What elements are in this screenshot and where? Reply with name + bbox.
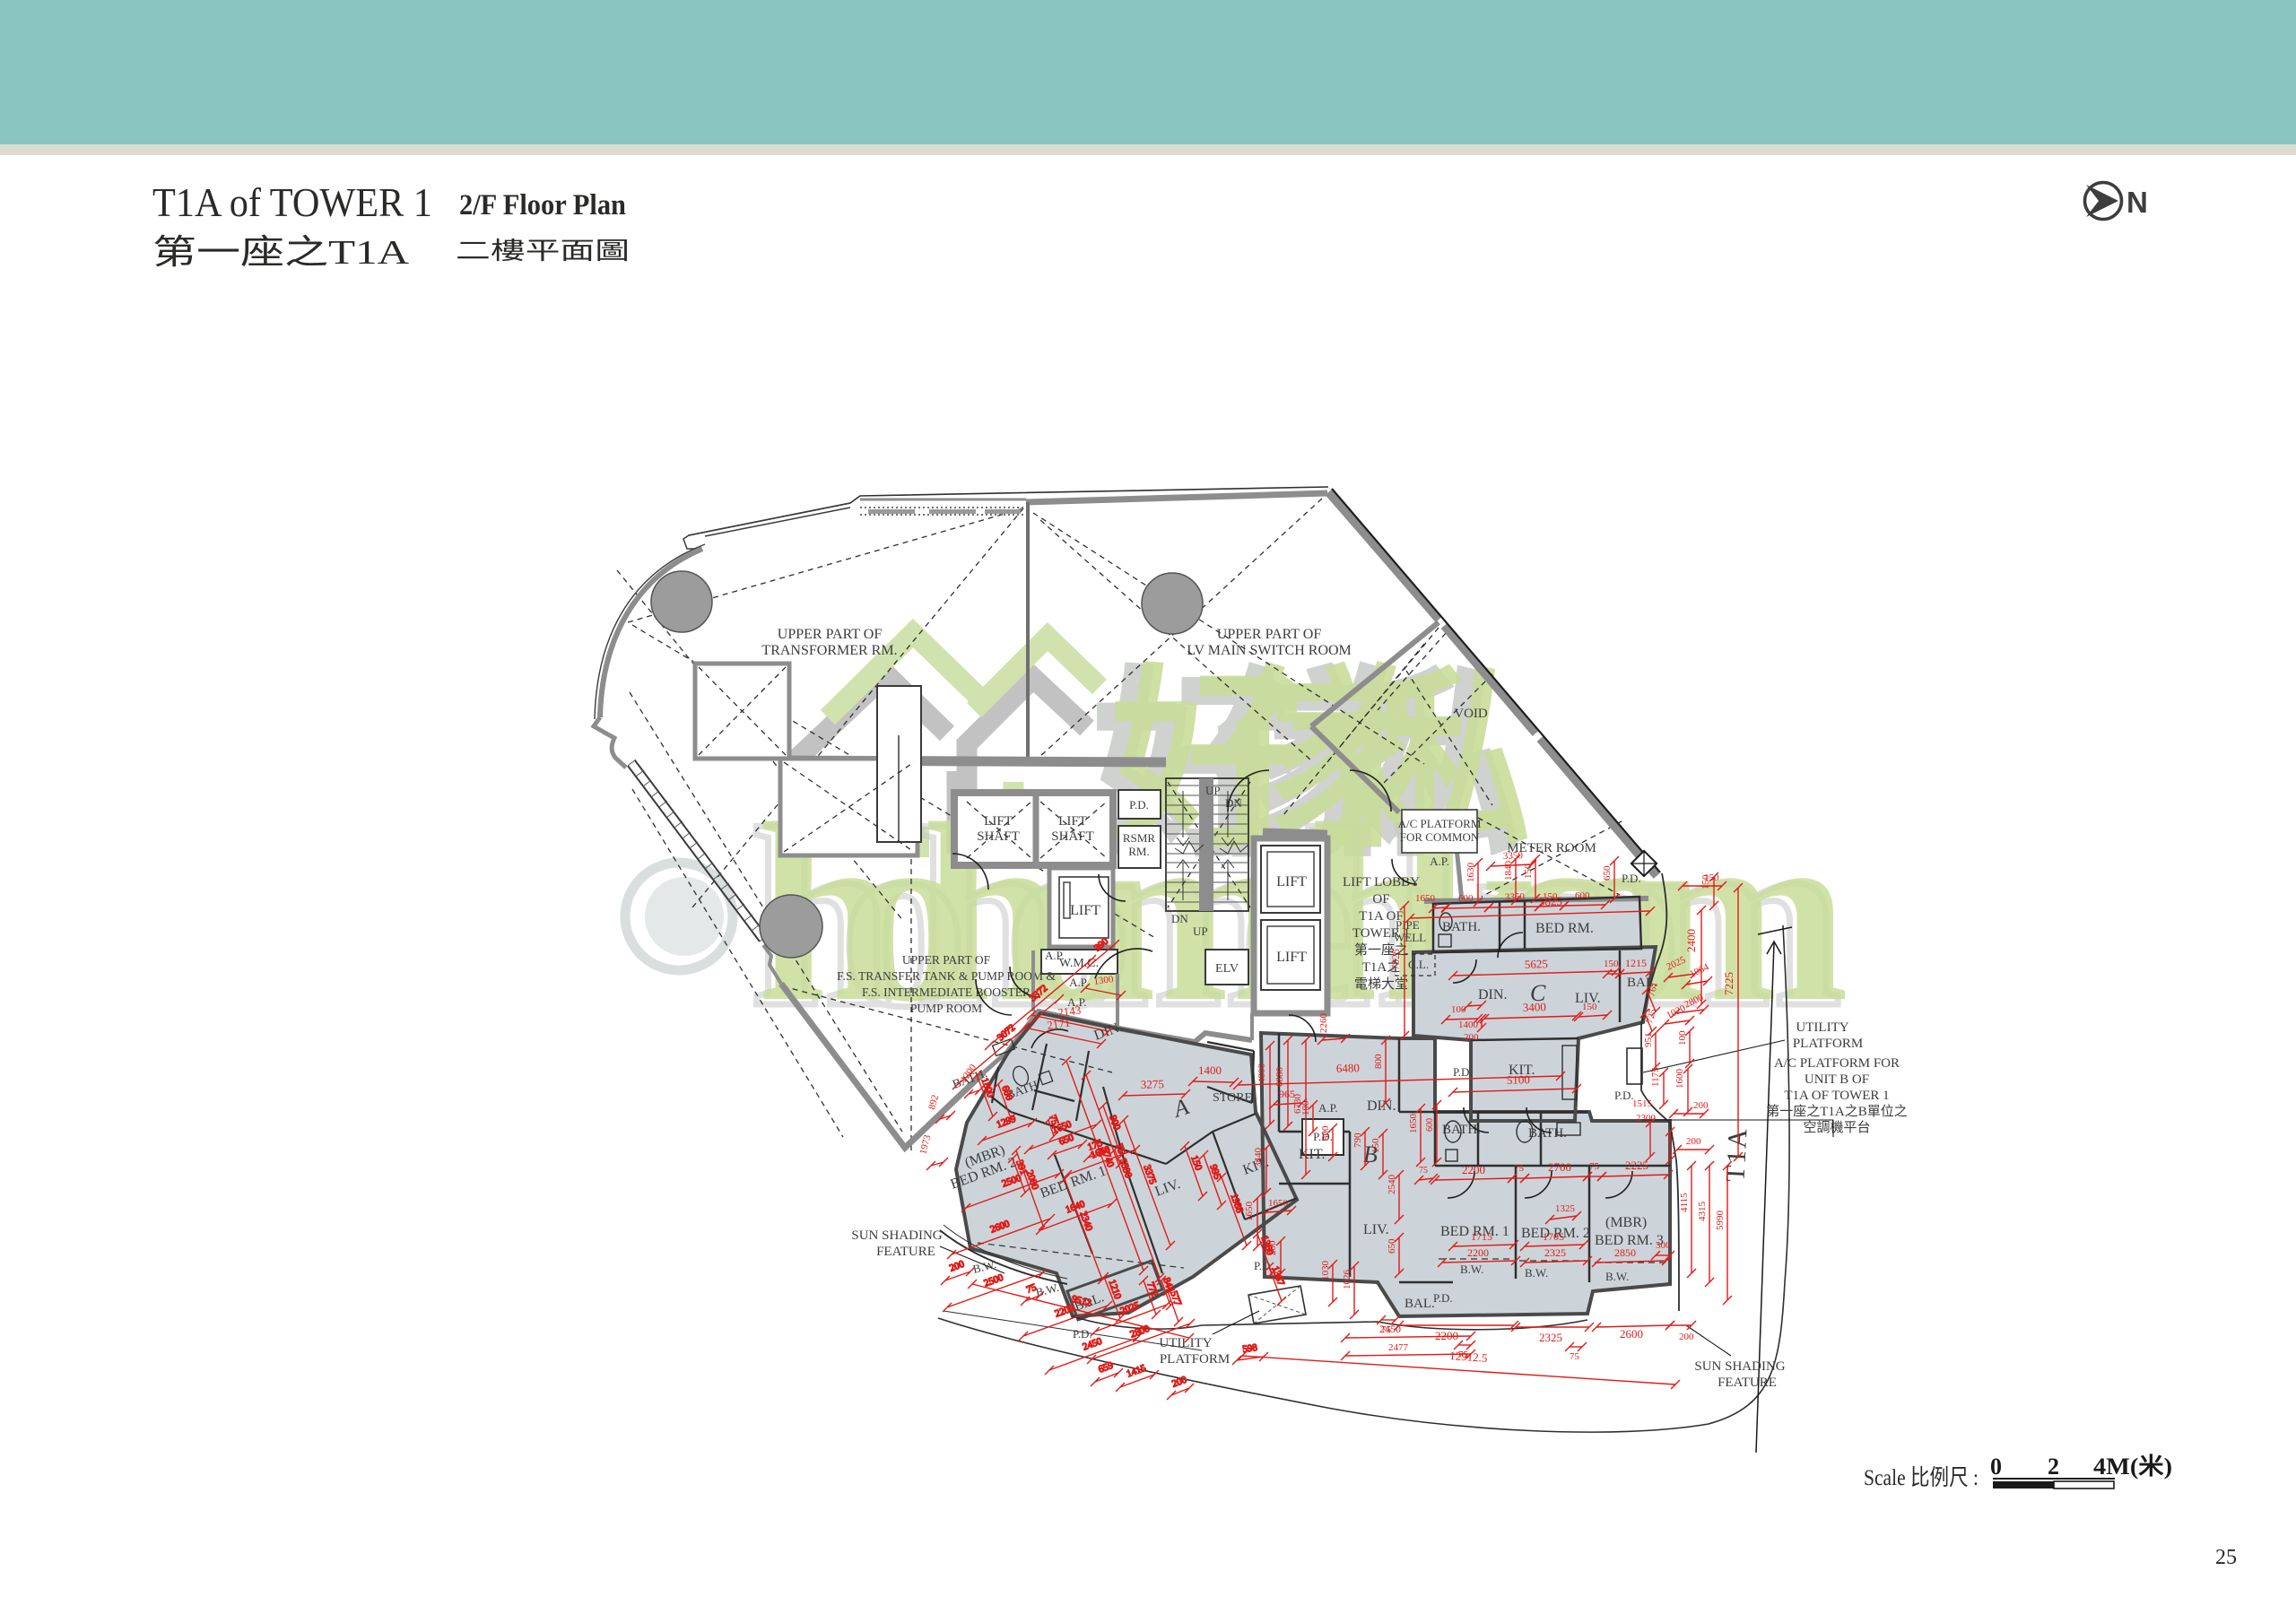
svg-text:2325: 2325 [1544,1246,1566,1259]
svg-text:3275: 3275 [1141,1077,1165,1091]
svg-text:2850: 2850 [1614,1246,1636,1259]
svg-text:951: 951 [1643,1033,1654,1048]
svg-text:2477: 2477 [1388,1342,1409,1353]
svg-text:FEATURE: FEATURE [876,1245,935,1259]
svg-text:UP: UP [1205,784,1221,797]
svg-text:A.P.: A.P. [1318,1101,1338,1115]
svg-text:2325: 2325 [1539,1331,1562,1344]
svg-text:B.W.: B.W. [1605,1270,1629,1283]
svg-text:4M(米): 4M(米) [2093,1454,2172,1480]
svg-text:B.W.: B.W. [1460,1263,1483,1276]
svg-text:LIFT: LIFT [1276,874,1307,890]
svg-text:LIFT: LIFT [1058,814,1087,829]
svg-text:P.D.: P.D. [1129,798,1149,811]
svg-text:1630: 1630 [1465,863,1476,883]
svg-text:UTILITY: UTILITY [1796,1020,1848,1035]
svg-text:75: 75 [1419,1166,1428,1176]
svg-text:RM.: RM. [1128,845,1149,858]
svg-text:DIN.: DIN. [1367,1098,1396,1114]
svg-text:PLATFORM: PLATFORM [1160,1352,1230,1367]
svg-text:1650: 1650 [1268,1198,1289,1209]
svg-text:2500: 2500 [983,1272,1005,1289]
svg-text:4800: 4800 [1257,1063,1267,1084]
svg-text:12912.5: 12912.5 [1449,1349,1488,1365]
svg-text:150: 150 [1604,959,1619,969]
svg-text:UPPER PART OF: UPPER PART OF [1217,627,1322,642]
svg-text:2300: 2300 [1636,1113,1657,1124]
svg-text:BED RM.: BED RM. [1535,921,1594,936]
svg-text:200: 200 [1679,1332,1694,1342]
svg-text:LIFT: LIFT [1276,950,1307,965]
svg-text:空調機平台: 空調機平台 [1803,1120,1870,1135]
svg-text:P.D.: P.D. [1433,1291,1453,1305]
svg-text:LIFT: LIFT [1070,903,1100,918]
svg-text:WELL: WELL [1394,931,1426,944]
svg-text:800: 800 [1320,1125,1331,1141]
svg-text:1705: 1705 [1543,1230,1564,1243]
svg-text:3350: 3350 [1503,850,1524,862]
svg-text:6480: 6480 [1336,1061,1361,1075]
svg-text:Scale 比例尺 :: Scale 比例尺 : [1864,1465,1979,1490]
svg-text:1650: 1650 [1415,893,1436,904]
svg-text:2540: 2540 [1387,1175,1397,1195]
svg-text:2450: 2450 [1379,1323,1401,1335]
svg-text:P.D.: P.D. [1073,1327,1092,1341]
svg-text:2700: 2700 [1548,1160,1571,1174]
svg-text:200: 200 [948,1259,966,1274]
svg-text:P.D.: P.D. [1614,1089,1634,1102]
svg-text:1215: 1215 [1625,957,1647,969]
svg-text:4115: 4115 [1679,1193,1690,1212]
svg-text:FOR COMMON: FOR COMMON [1400,830,1480,844]
svg-text:B.W.: B.W. [971,1257,997,1276]
svg-text:1715: 1715 [1471,1230,1492,1243]
svg-text:600: 600 [1425,1118,1435,1132]
svg-text:第一座之T1A之B單位之: 第一座之T1A之B單位之 [1766,1103,1908,1119]
svg-text:200: 200 [1686,1136,1701,1147]
svg-text:SHAFT: SHAFT [1051,829,1094,844]
svg-text:A.P.: A.P. [1430,855,1449,868]
svg-text:1400: 1400 [1458,1020,1479,1030]
svg-text:UPPER PART OF: UPPER PART OF [902,953,991,967]
svg-text:UP: UP [1193,924,1208,938]
svg-text:RSMR: RSMR [1123,831,1155,845]
svg-text:5100: 5100 [1507,1072,1531,1087]
svg-text:SUN SHADING: SUN SHADING [1694,1359,1785,1374]
svg-text:2600: 2600 [1620,1327,1643,1341]
svg-text:5625: 5625 [1525,957,1549,971]
svg-text:100: 100 [1677,1030,1688,1046]
svg-text:3400: 3400 [1523,1000,1547,1014]
svg-text:2: 2 [2048,1454,2059,1480]
svg-text:1515: 1515 [1632,1098,1653,1109]
svg-text:2400: 2400 [1684,929,1698,952]
svg-text:0: 0 [1990,1454,2002,1480]
svg-text:LV MAIN SWITCH ROOM: LV MAIN SWITCH ROOM [1187,643,1352,658]
svg-text:UNIT B OF: UNIT B OF [1805,1072,1869,1087]
svg-text:PLATFORM: PLATFORM [1793,1037,1863,1051]
svg-text:150: 150 [1704,872,1719,883]
svg-text:T1A of TOWER 1: T1A of TOWER 1 [152,179,432,225]
svg-text:F.S. INTERMEDIATE BOOSTER: F.S. INTERMEDIATE BOOSTER [862,985,1031,999]
svg-text:1650: 1650 [1408,1114,1419,1134]
svg-text:1600: 1600 [1674,1069,1685,1089]
svg-text:2200: 2200 [1467,1246,1489,1259]
svg-text:B.W.: B.W. [1525,1266,1548,1280]
svg-text:二樓平面圖: 二樓平面圖 [456,238,630,265]
svg-text:1030: 1030 [1320,1261,1331,1281]
svg-text:2260: 2260 [1318,1013,1329,1034]
svg-text:600: 600 [1458,893,1474,904]
svg-text:ELV: ELV [1215,962,1239,976]
svg-text:LIFT: LIFT [984,814,1013,829]
svg-text:1026: 1026 [1342,1270,1352,1290]
svg-text:電梯大堂: 電梯大堂 [1354,976,1408,992]
svg-text:BATH.: BATH. [1442,920,1481,934]
svg-text:3440: 3440 [1253,1148,1264,1168]
svg-text:DN: DN [1171,912,1188,925]
svg-text:DIN.: DIN. [1478,987,1507,1002]
svg-text:75: 75 [1570,1351,1580,1362]
svg-text:4315: 4315 [1697,1202,1708,1222]
svg-text:TRANSFORMER RM.: TRANSFORMER RM. [761,643,897,658]
svg-text:2200: 2200 [1435,1329,1458,1342]
svg-text:F.S. TRANSFER TANK & PUMP ROOM: F.S. TRANSFER TANK & PUMP ROOM & [837,969,1056,983]
svg-text:650: 650 [1387,1238,1397,1254]
svg-text:P.D.: P.D. [1453,1065,1473,1079]
svg-text:(MBR): (MBR) [1605,1215,1647,1230]
svg-text:2/F Floor Plan: 2/F Floor Plan [459,189,626,221]
svg-text:BAL.: BAL. [1405,1297,1435,1311]
svg-text:790: 790 [1352,1133,1363,1148]
svg-text:VOID: VOID [1454,707,1488,721]
svg-text:第一座之T1A: 第一座之T1A [152,234,410,272]
svg-text:200: 200 [1464,1032,1479,1043]
svg-text:2225: 2225 [1625,1159,1648,1172]
svg-text:UPPER PART OF: UPPER PART OF [778,627,883,642]
svg-text:T1A OF TOWER 1: T1A OF TOWER 1 [1784,1089,1889,1103]
svg-text:STORE: STORE [1213,1091,1252,1105]
svg-text:A.P.: A.P. [1045,949,1065,962]
svg-text:BATH.: BATH. [1528,1126,1567,1141]
svg-text:200: 200 [1693,1100,1709,1111]
svg-text:1650: 1650 [1244,1202,1255,1222]
svg-text:659: 659 [1097,1360,1115,1376]
svg-text:800: 800 [1373,1054,1384,1069]
svg-text:SHAFT: SHAFT [977,829,1020,844]
svg-text:5990: 5990 [1715,1211,1726,1231]
svg-text:7325: 7325 [1389,949,1402,970]
svg-text:A/C PLATFORM FOR: A/C PLATFORM FOR [1774,1056,1900,1071]
svg-text:KIT.: KIT. [1299,1147,1325,1162]
svg-text:T1A: T1A [1720,1126,1752,1183]
svg-text:OF: OF [1372,892,1389,907]
svg-text:25: 25 [2215,1546,2237,1569]
svg-text:600: 600 [1575,890,1590,901]
svg-text:1400: 1400 [1198,1063,1222,1077]
svg-text:2200: 2200 [1462,1163,1485,1176]
svg-text:150: 150 [1582,1002,1597,1012]
svg-text:UTILITY: UTILITY [1159,1336,1212,1350]
svg-text:N: N [2126,186,2148,219]
svg-text:150: 150 [1523,864,1534,879]
svg-text:FEATURE: FEATURE [1718,1376,1777,1390]
svg-text:75: 75 [1514,1163,1525,1174]
svg-text:PUMP ROOM: PUMP ROOM [910,1002,982,1015]
svg-text:1840: 1840 [1503,861,1514,881]
svg-text:SUN SHADING: SUN SHADING [851,1228,942,1243]
svg-text:650: 650 [1602,865,1613,881]
svg-text:1325: 1325 [1555,1203,1576,1214]
svg-text:7225: 7225 [1722,972,1735,995]
svg-text:892: 892 [926,1094,941,1111]
svg-text:150: 150 [1543,891,1558,902]
svg-text:C.L.: C.L. [1408,958,1429,971]
svg-text:1175: 1175 [1650,1067,1661,1087]
svg-text:150: 150 [1370,1138,1381,1153]
svg-text:75: 75 [1589,1161,1600,1172]
svg-text:LIV.: LIV. [1363,1222,1389,1237]
svg-text:965: 965 [1279,1088,1295,1100]
svg-text:A/C PLATFORM: A/C PLATFORM [1398,817,1482,830]
svg-text:P.D.: P.D. [1622,872,1641,885]
svg-text:300: 300 [1656,1240,1671,1251]
svg-text:1415: 1415 [1126,1363,1148,1380]
